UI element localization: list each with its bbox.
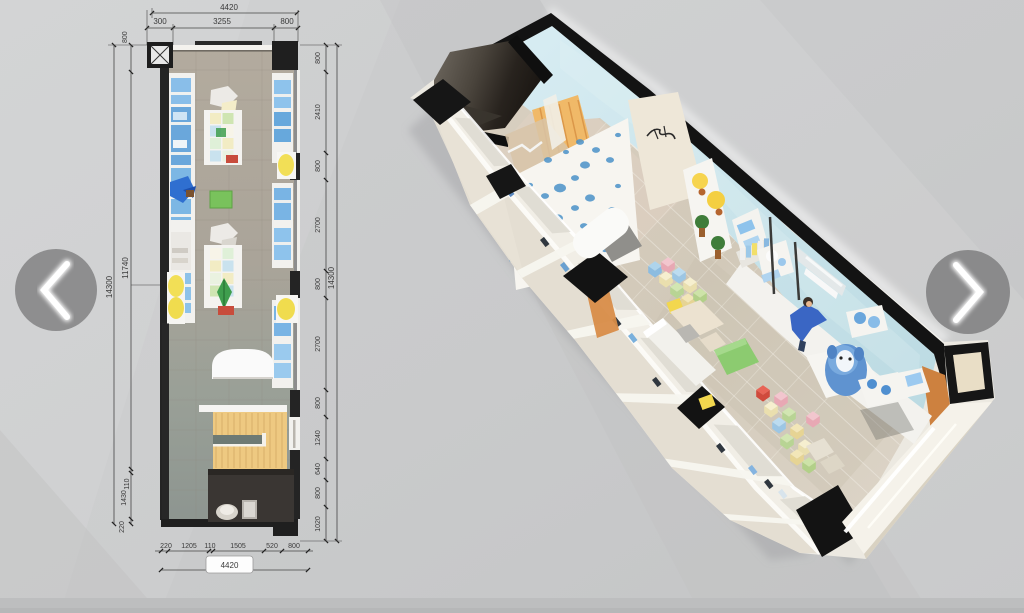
svg-text:1505: 1505 [230, 543, 246, 550]
svg-text:14300: 14300 [327, 266, 336, 289]
svg-text:1240: 1240 [315, 430, 322, 446]
svg-text:640: 640 [315, 463, 322, 475]
svg-text:2700: 2700 [315, 217, 322, 233]
svg-text:800: 800 [122, 31, 129, 43]
svg-text:1430: 1430 [121, 490, 128, 506]
svg-text:520: 520 [266, 543, 278, 550]
svg-text:800: 800 [315, 52, 322, 64]
svg-text:300: 300 [153, 17, 167, 26]
svg-text:800: 800 [315, 160, 322, 172]
svg-text:3255: 3255 [213, 17, 231, 26]
svg-text:1205: 1205 [181, 543, 197, 550]
svg-text:800: 800 [315, 487, 322, 499]
svg-text:220: 220 [119, 521, 126, 533]
svg-text:4420: 4420 [220, 3, 238, 12]
svg-text:220: 220 [160, 543, 172, 550]
svg-text:2700: 2700 [315, 336, 322, 352]
svg-text:110: 110 [204, 543, 215, 550]
svg-text:11740: 11740 [121, 257, 130, 279]
svg-text:800: 800 [315, 397, 322, 409]
svg-text:800: 800 [315, 278, 322, 290]
svg-text:4420: 4420 [221, 561, 239, 570]
svg-text:14300: 14300 [105, 275, 114, 298]
svg-text:2410: 2410 [315, 104, 322, 120]
svg-text:110: 110 [124, 478, 131, 489]
svg-text:800: 800 [288, 543, 300, 550]
svg-text:800: 800 [280, 17, 294, 26]
svg-text:1020: 1020 [315, 516, 322, 532]
